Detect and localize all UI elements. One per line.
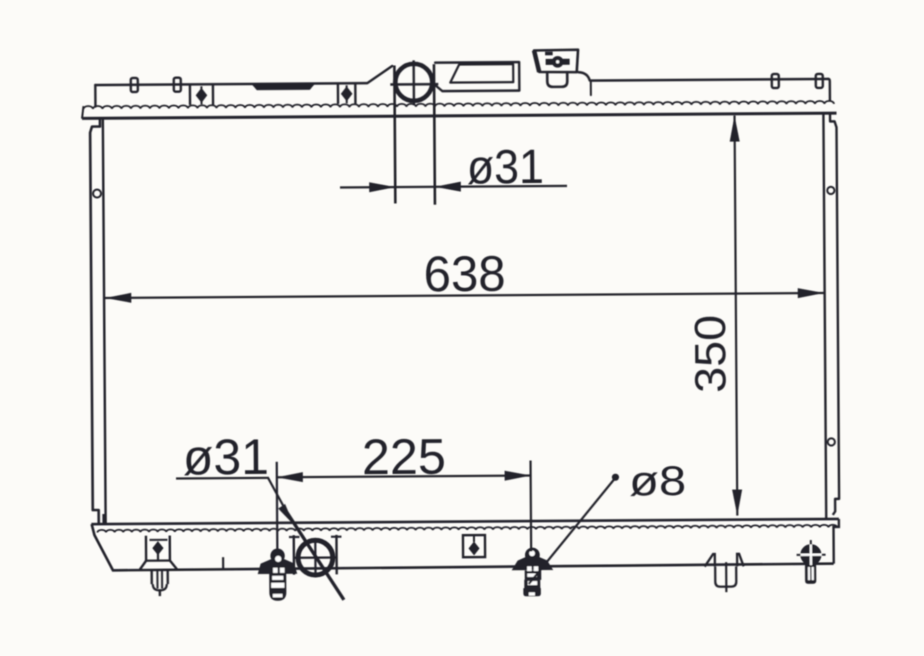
- svg-text:225: 225: [362, 429, 446, 486]
- svg-text:638: 638: [423, 246, 505, 303]
- svg-text:ø31: ø31: [183, 429, 269, 486]
- svg-text:ø8: ø8: [629, 457, 686, 504]
- svg-text:ø31: ø31: [467, 141, 544, 195]
- svg-text:350: 350: [686, 315, 736, 393]
